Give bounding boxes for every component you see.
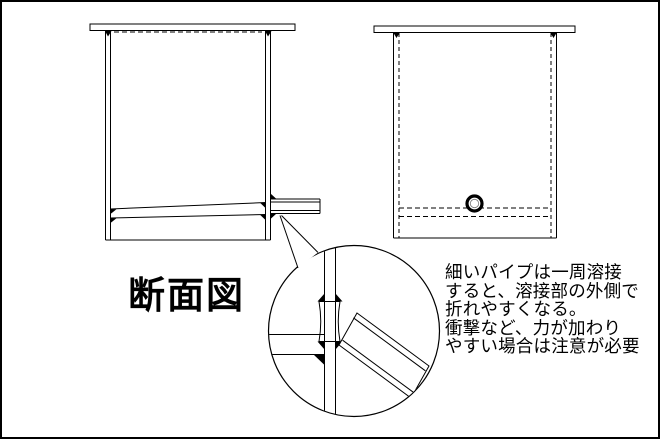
tank-diagram-svg	[2, 2, 658, 437]
top-flange	[90, 24, 295, 31]
weld-mark	[271, 194, 277, 200]
caution-note-line: 細いパイプは一周溶接	[445, 263, 640, 282]
caution-note-line: やすい場合は注意が必要	[445, 337, 640, 356]
weld-mark	[111, 209, 117, 214]
section-view-title: 断面図	[128, 265, 245, 319]
weld-mark	[111, 218, 117, 223]
detail-callout	[266, 216, 440, 418]
caution-note: 細いパイプは一周溶接 すると、溶接部の外側で 折れやすくなる。 衝撃など、力が加…	[445, 263, 640, 356]
bottom-plate-top-surface	[111, 203, 266, 210]
caution-note-line: 衝撃など、力が加わり	[445, 319, 640, 338]
bottom-plate-bottom-surface	[111, 215, 266, 219]
weld-marks	[105, 31, 277, 223]
diagram-canvas: 断面図 細いパイプは一周溶接 すると、溶接部の外側で 折れやすくなる。 衝撃など…	[0, 0, 660, 439]
weld-mark	[260, 203, 266, 209]
caution-note-line: すると、溶接部の外側で	[445, 282, 640, 301]
drain-pipe	[271, 199, 321, 214]
side-section-view	[90, 24, 320, 240]
weld-mark	[271, 214, 277, 220]
weld-marks	[394, 33, 557, 38]
front-view	[374, 26, 575, 238]
pipe-end-circle	[467, 196, 482, 211]
weld-mark	[260, 215, 266, 221]
top-flange	[374, 26, 575, 33]
caution-note-line: 折れやすくなる。	[445, 300, 640, 319]
